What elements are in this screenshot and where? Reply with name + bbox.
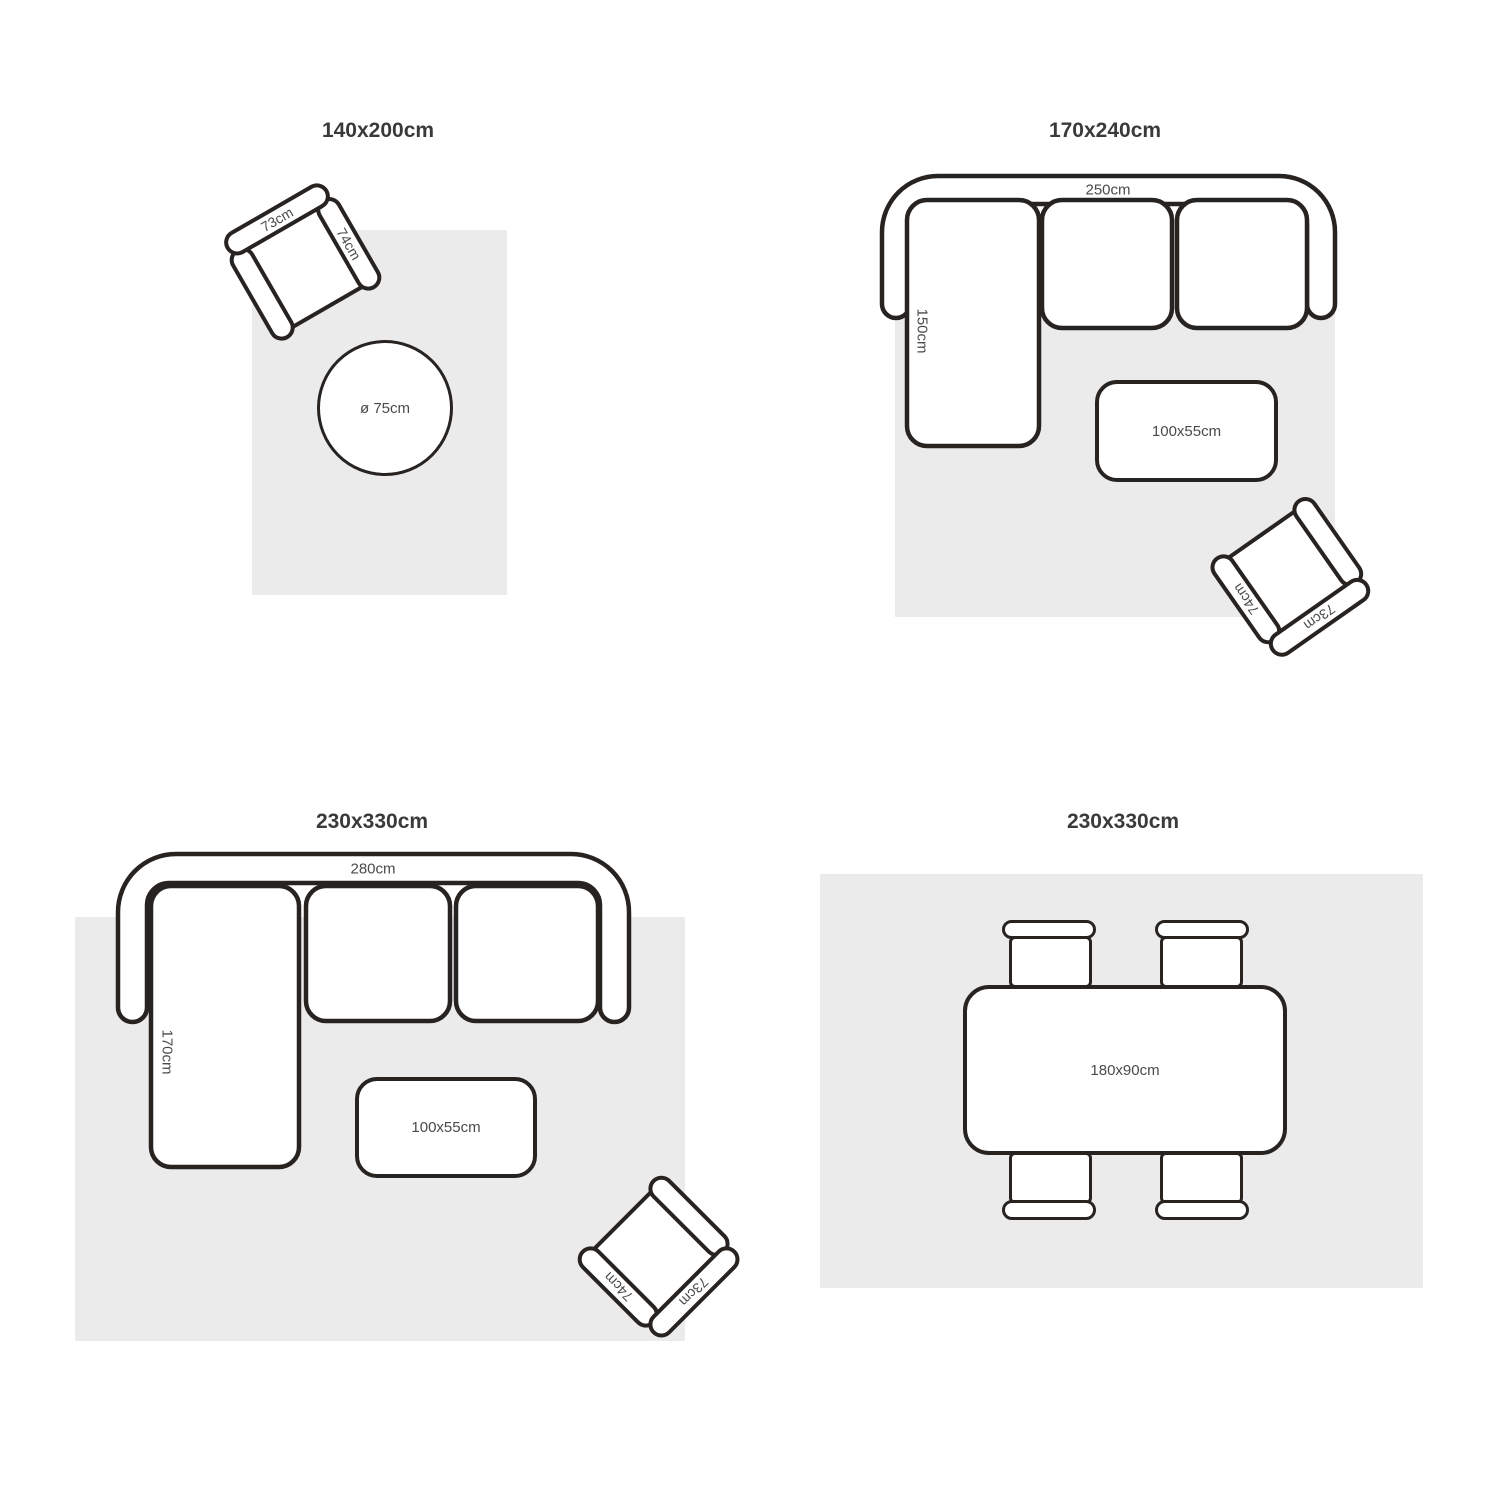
sofa-cushion [1042, 200, 1172, 328]
q4-dining-table: 180x90cm [963, 985, 1287, 1155]
q4-dining-chair-seat [1009, 936, 1092, 988]
sofa-chaise [151, 886, 299, 1167]
q1-title: 140x200cm [322, 119, 434, 143]
q3-sofa-depth-label: 170cm [159, 1029, 176, 1074]
sofa-cushion [306, 886, 450, 1021]
q2-sofa-depth-label: 150cm [914, 308, 931, 353]
q2-title: 170x240cm [1049, 119, 1161, 143]
q4-dining-chair-back [1002, 920, 1096, 939]
q3-sofa-width-label: 280cm [350, 861, 395, 878]
q4-dining-chair-back [1002, 1200, 1096, 1220]
q2-coffee-table: 100x55cm [1095, 380, 1278, 482]
q4-dining-chair-back [1155, 920, 1249, 939]
q2-sofa-width-label: 250cm [1085, 182, 1130, 199]
q3-coffee-table: 100x55cm [355, 1077, 537, 1178]
q4-dining-chair-seat [1009, 1152, 1092, 1204]
sofa-cushion [1177, 200, 1307, 328]
q1-round-table-label: ø 75cm [360, 400, 410, 417]
q2-coffee-table-label: 100x55cm [1152, 423, 1221, 440]
q4-dining-chair-seat [1160, 1152, 1243, 1204]
rug-size-guide-diagram: 140x200cm 74cm 73cm ø 75cm 170x240cm 250… [0, 0, 1500, 1500]
q3-coffee-table-label: 100x55cm [411, 1119, 480, 1136]
q1-round-table: ø 75cm [317, 340, 453, 476]
q4-dining-chair-back [1155, 1200, 1249, 1220]
sofa-cushion [456, 886, 598, 1021]
q4-dining-table-label: 180x90cm [1090, 1062, 1159, 1079]
q4-dining-chair-seat [1160, 936, 1243, 988]
q3-title: 230x330cm [316, 810, 428, 834]
q4-title: 230x330cm [1067, 810, 1179, 834]
